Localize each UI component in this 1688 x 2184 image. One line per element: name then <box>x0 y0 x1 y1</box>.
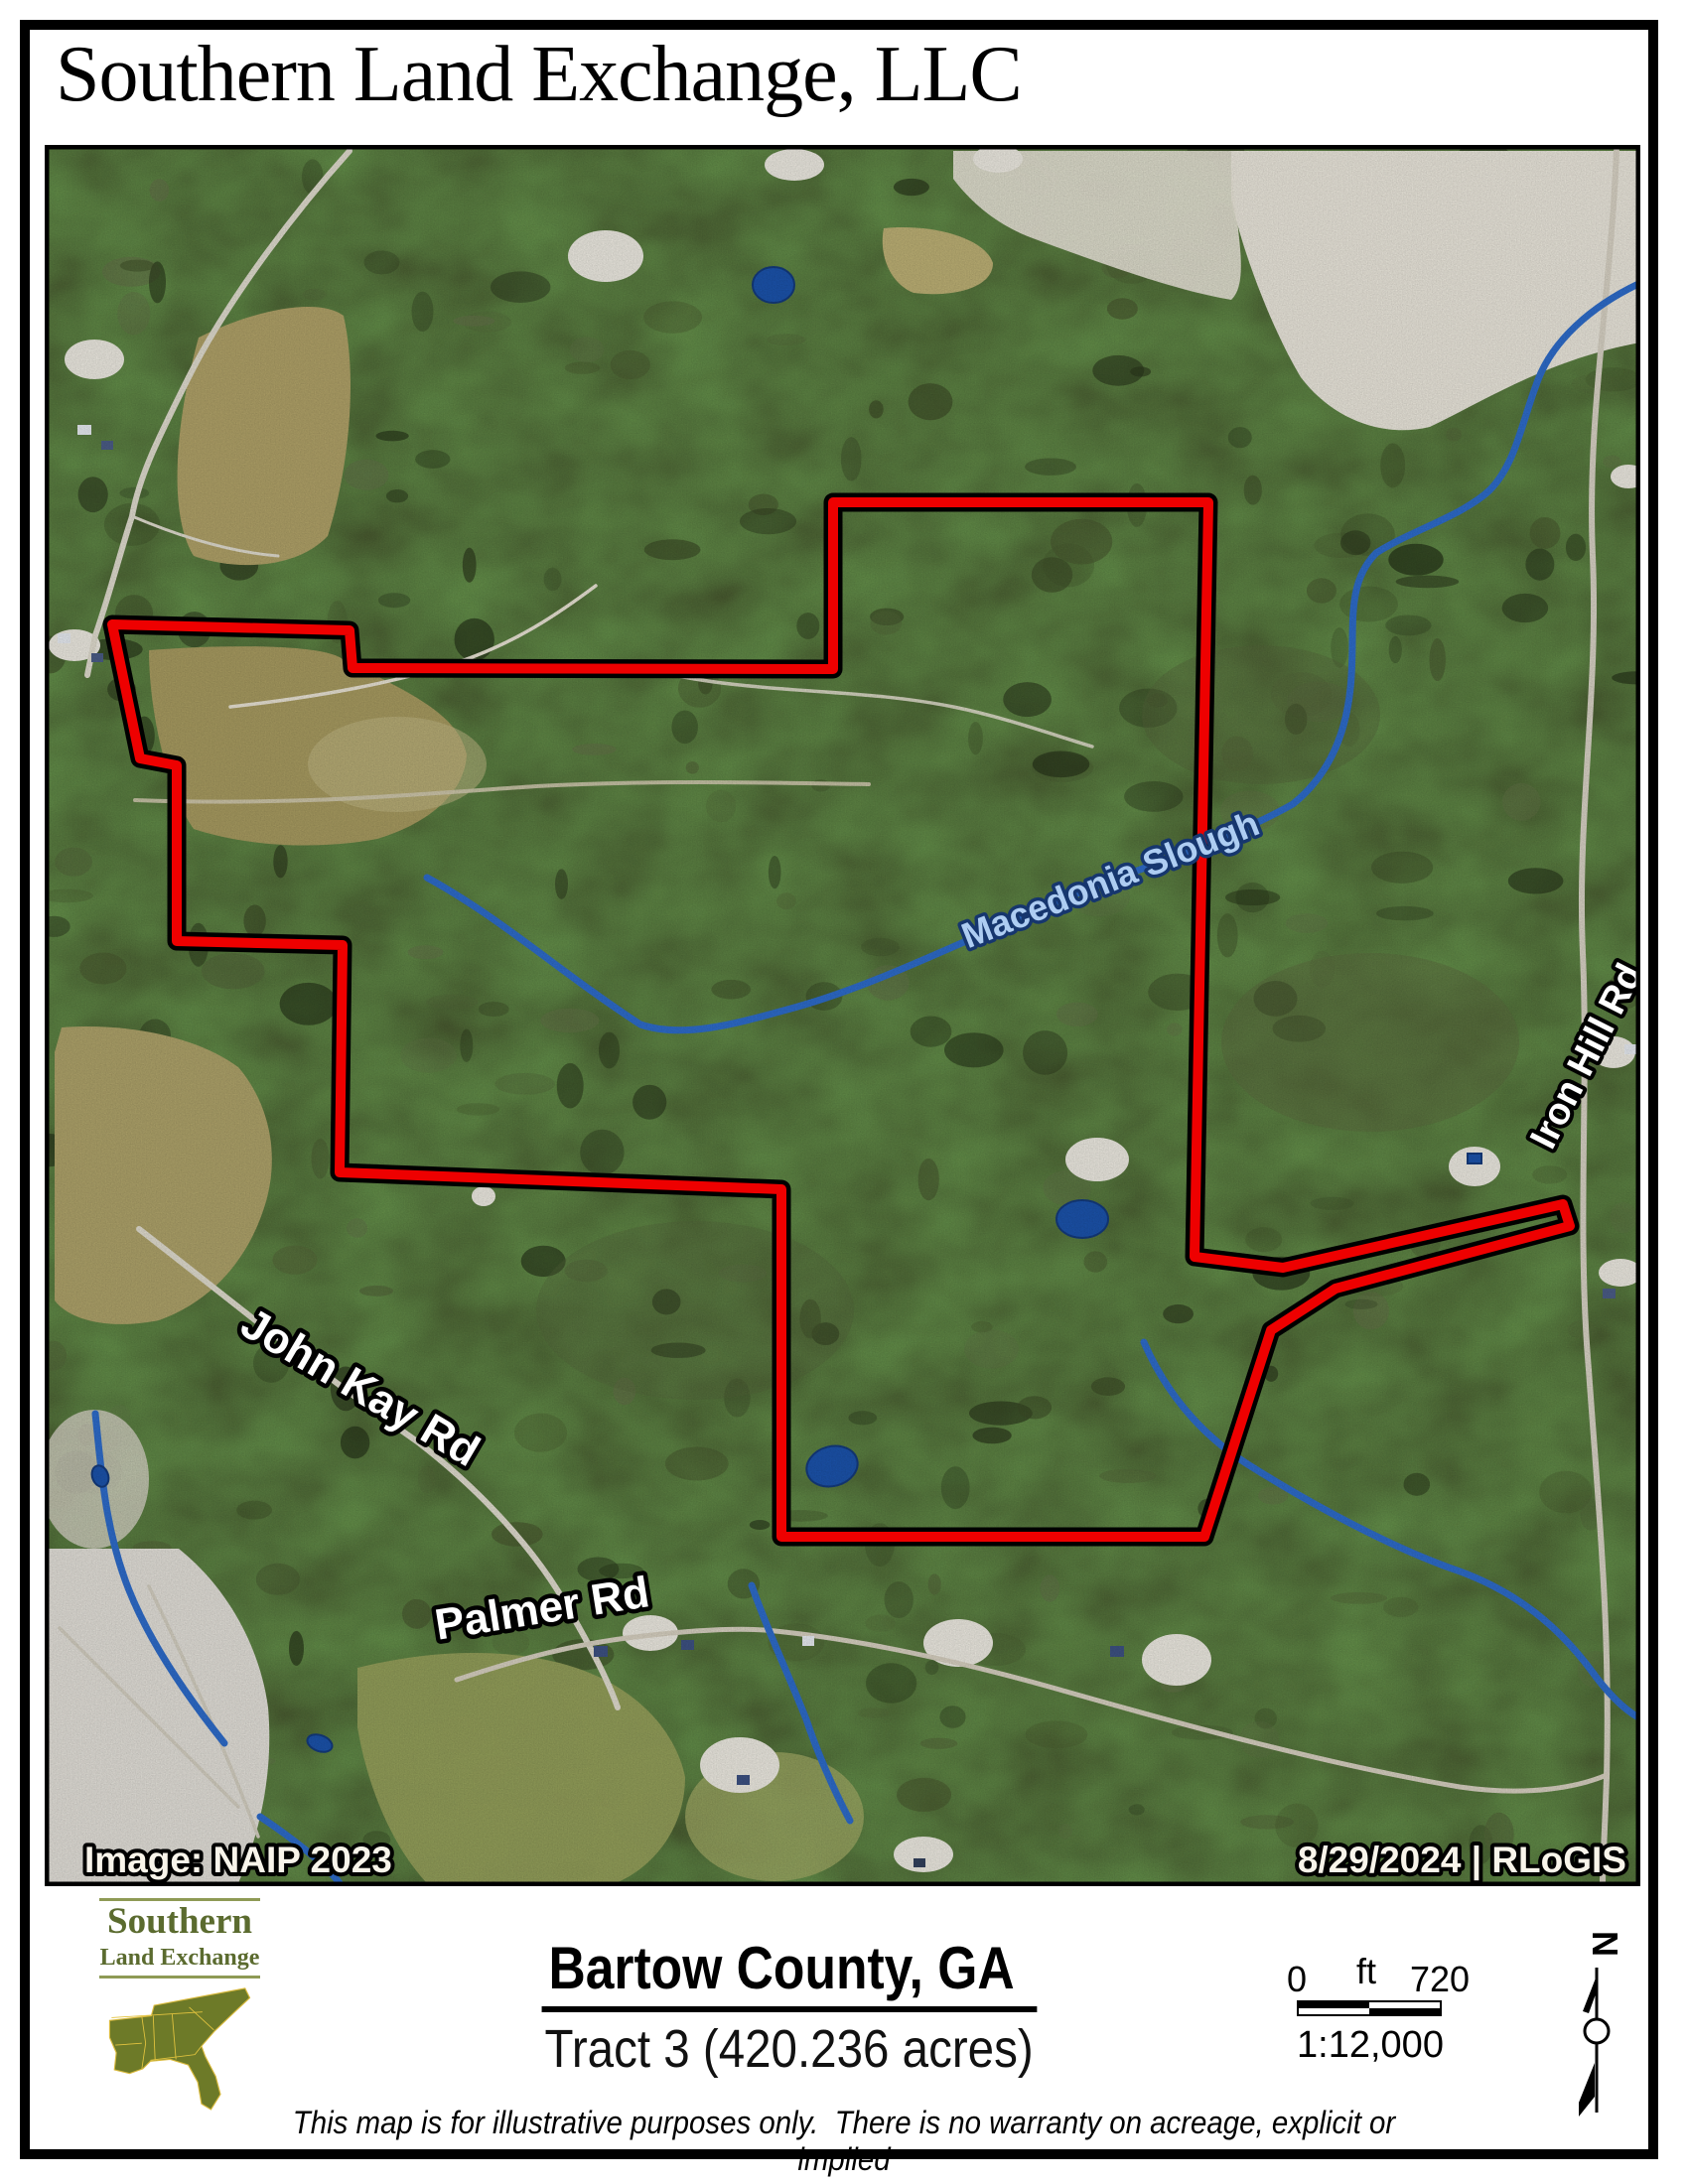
logo-rule-bottom <box>99 1976 260 1979</box>
scale-unit-label: ft <box>1356 1951 1376 1992</box>
county-title: Bartow County, GA <box>542 1934 1037 2012</box>
scale-max-label: 720 <box>1410 1959 1470 2000</box>
scale-ratio: 1:12,000 <box>1271 2024 1470 2067</box>
logo-text-line2: Land Exchange <box>95 1944 264 1973</box>
logo-text-line1: Southern <box>95 1901 264 1944</box>
southeast-us-map-icon <box>100 1986 259 2128</box>
scale-bar <box>1297 2000 1442 2016</box>
tract-subtitle: Tract 3 (420.236 acres) <box>545 2018 1034 2080</box>
north-letter: N <box>1585 1931 1625 1957</box>
page-title: Southern Land Exchange, LLC <box>56 30 1545 120</box>
scale-zero-label: 0 <box>1287 1959 1307 2000</box>
aerial-map: Macedonia Slough Iron Hill Rd John Kay R… <box>45 145 1640 1886</box>
scale-bar-group: 0 ft 720 1:12,000 <box>1271 1951 1470 2053</box>
company-logo: Southern Land Exchange <box>95 1898 264 2133</box>
map-caption: Bartow County, GA Tract 3 (420.236 acres… <box>467 1934 1112 2080</box>
north-arrow: N <box>1549 1916 1648 2144</box>
date-credit: 8/29/2024 | RLoGIS <box>1298 1840 1626 1881</box>
disclaimer-text: This map is for illustrative purposes on… <box>250 2105 1438 2178</box>
imagery-credit: Image: NAIP 2023 <box>84 1840 392 1880</box>
